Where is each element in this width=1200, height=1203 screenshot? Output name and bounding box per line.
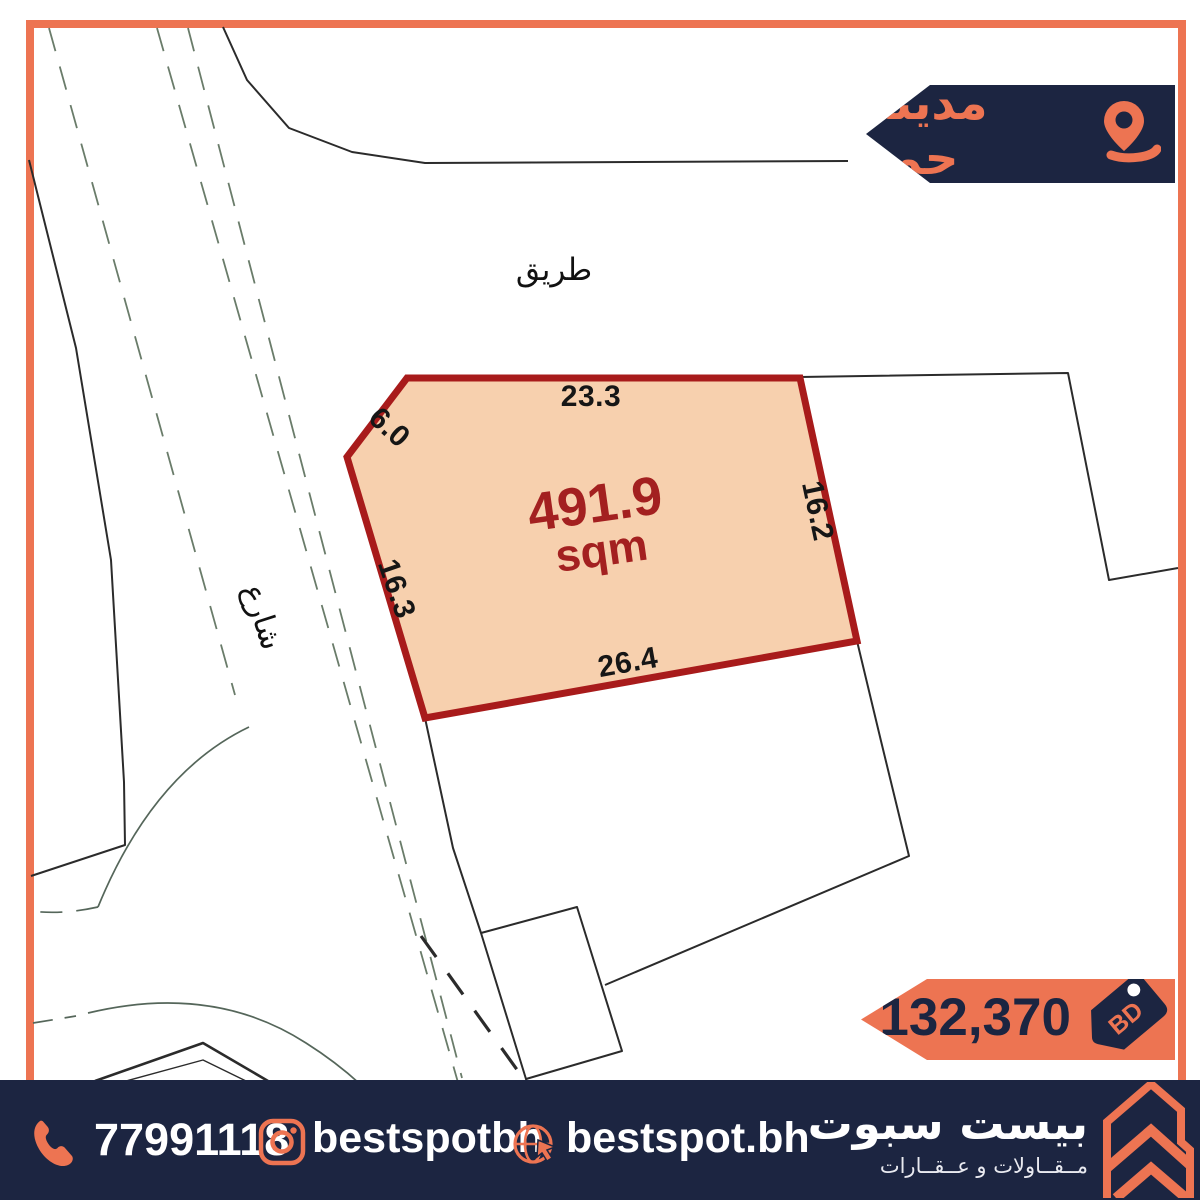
flyer-root: { "badge": { "location_label": "مدينة حم…	[0, 0, 1200, 1200]
footer-brand-tagline: مــقــاولات و عــقــارات	[880, 1154, 1088, 1178]
location-banner: مدينة حمد	[866, 85, 1175, 183]
footer-brand-name: بيست سبوت	[808, 1097, 1088, 1150]
plot-dim-top: 23.3	[561, 380, 621, 414]
plot-area-label: 491.9 sqm	[525, 470, 672, 582]
footer-website-url: bestspot.bh	[566, 1114, 810, 1163]
road-label: طريق	[516, 252, 592, 288]
price-amount: 132,370	[879, 987, 1071, 1052]
footer-bar: 77991118 bestspotbh bestspot.bh بيست سبو…	[0, 1080, 1200, 1200]
footer-instagram-handle: bestspotbh	[312, 1114, 544, 1163]
phone-icon	[30, 1114, 84, 1173]
location-pin-icon	[1099, 99, 1161, 170]
roundabout-arcs	[31, 727, 360, 1084]
instagram-icon	[258, 1118, 306, 1171]
price-ribbon: 132,370 BD	[861, 979, 1175, 1060]
bestspot-logo-icon	[1098, 1082, 1196, 1203]
price-tag-icon: BD	[1075, 973, 1171, 1066]
website-globe-icon	[512, 1121, 558, 1172]
